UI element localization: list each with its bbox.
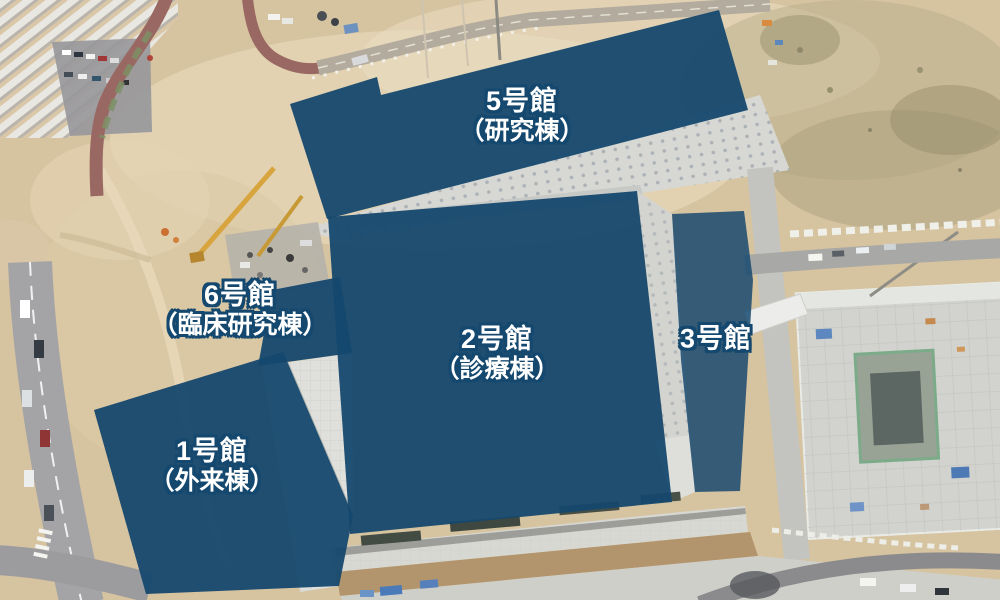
aerial-photo-background — [0, 0, 1000, 600]
building-overlay-6 — [258, 277, 352, 366]
building-overlay-2 — [328, 191, 672, 534]
site-map: 5号館 （研究棟） 2号館 （診療棟） 3号館 6号館 （臨床研究棟） 1号館 … — [0, 0, 1000, 600]
construction-building-right — [796, 282, 1000, 539]
